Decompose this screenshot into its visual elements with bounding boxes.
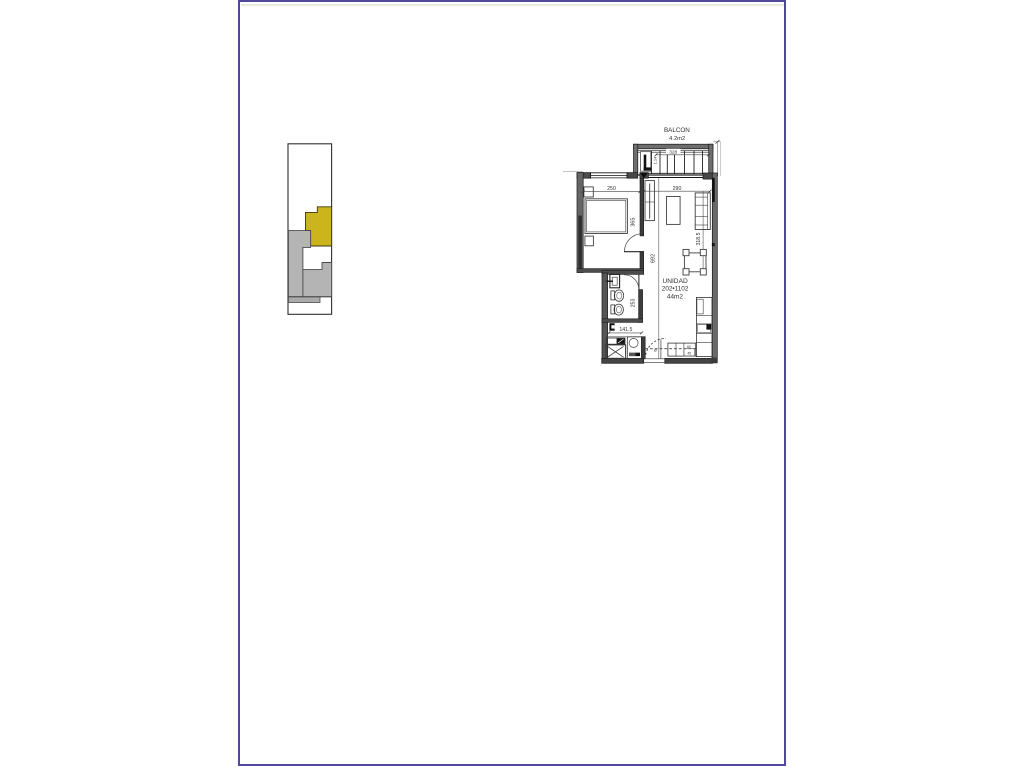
svg-text:250: 250 <box>607 186 616 192</box>
svg-text:692: 692 <box>651 254 657 263</box>
svg-text:365: 365 <box>631 218 637 227</box>
svg-text:4.2m2: 4.2m2 <box>669 136 685 142</box>
svg-text:BALCON: BALCON <box>664 127 690 134</box>
svg-text:290: 290 <box>673 186 682 192</box>
svg-text:202•1102: 202•1102 <box>662 286 689 293</box>
svg-text:UNIDAD: UNIDAD <box>662 278 688 285</box>
svg-text:318.5: 318.5 <box>696 232 702 245</box>
svg-text:1.14: 1.14 <box>653 156 658 165</box>
svg-text:60: 60 <box>687 345 691 349</box>
svg-text:45: 45 <box>687 352 691 356</box>
svg-text:253: 253 <box>631 298 637 307</box>
svg-text:44m2: 44m2 <box>667 293 683 300</box>
svg-text:141.5: 141.5 <box>619 327 632 333</box>
svg-text:ø: ø <box>654 348 657 353</box>
